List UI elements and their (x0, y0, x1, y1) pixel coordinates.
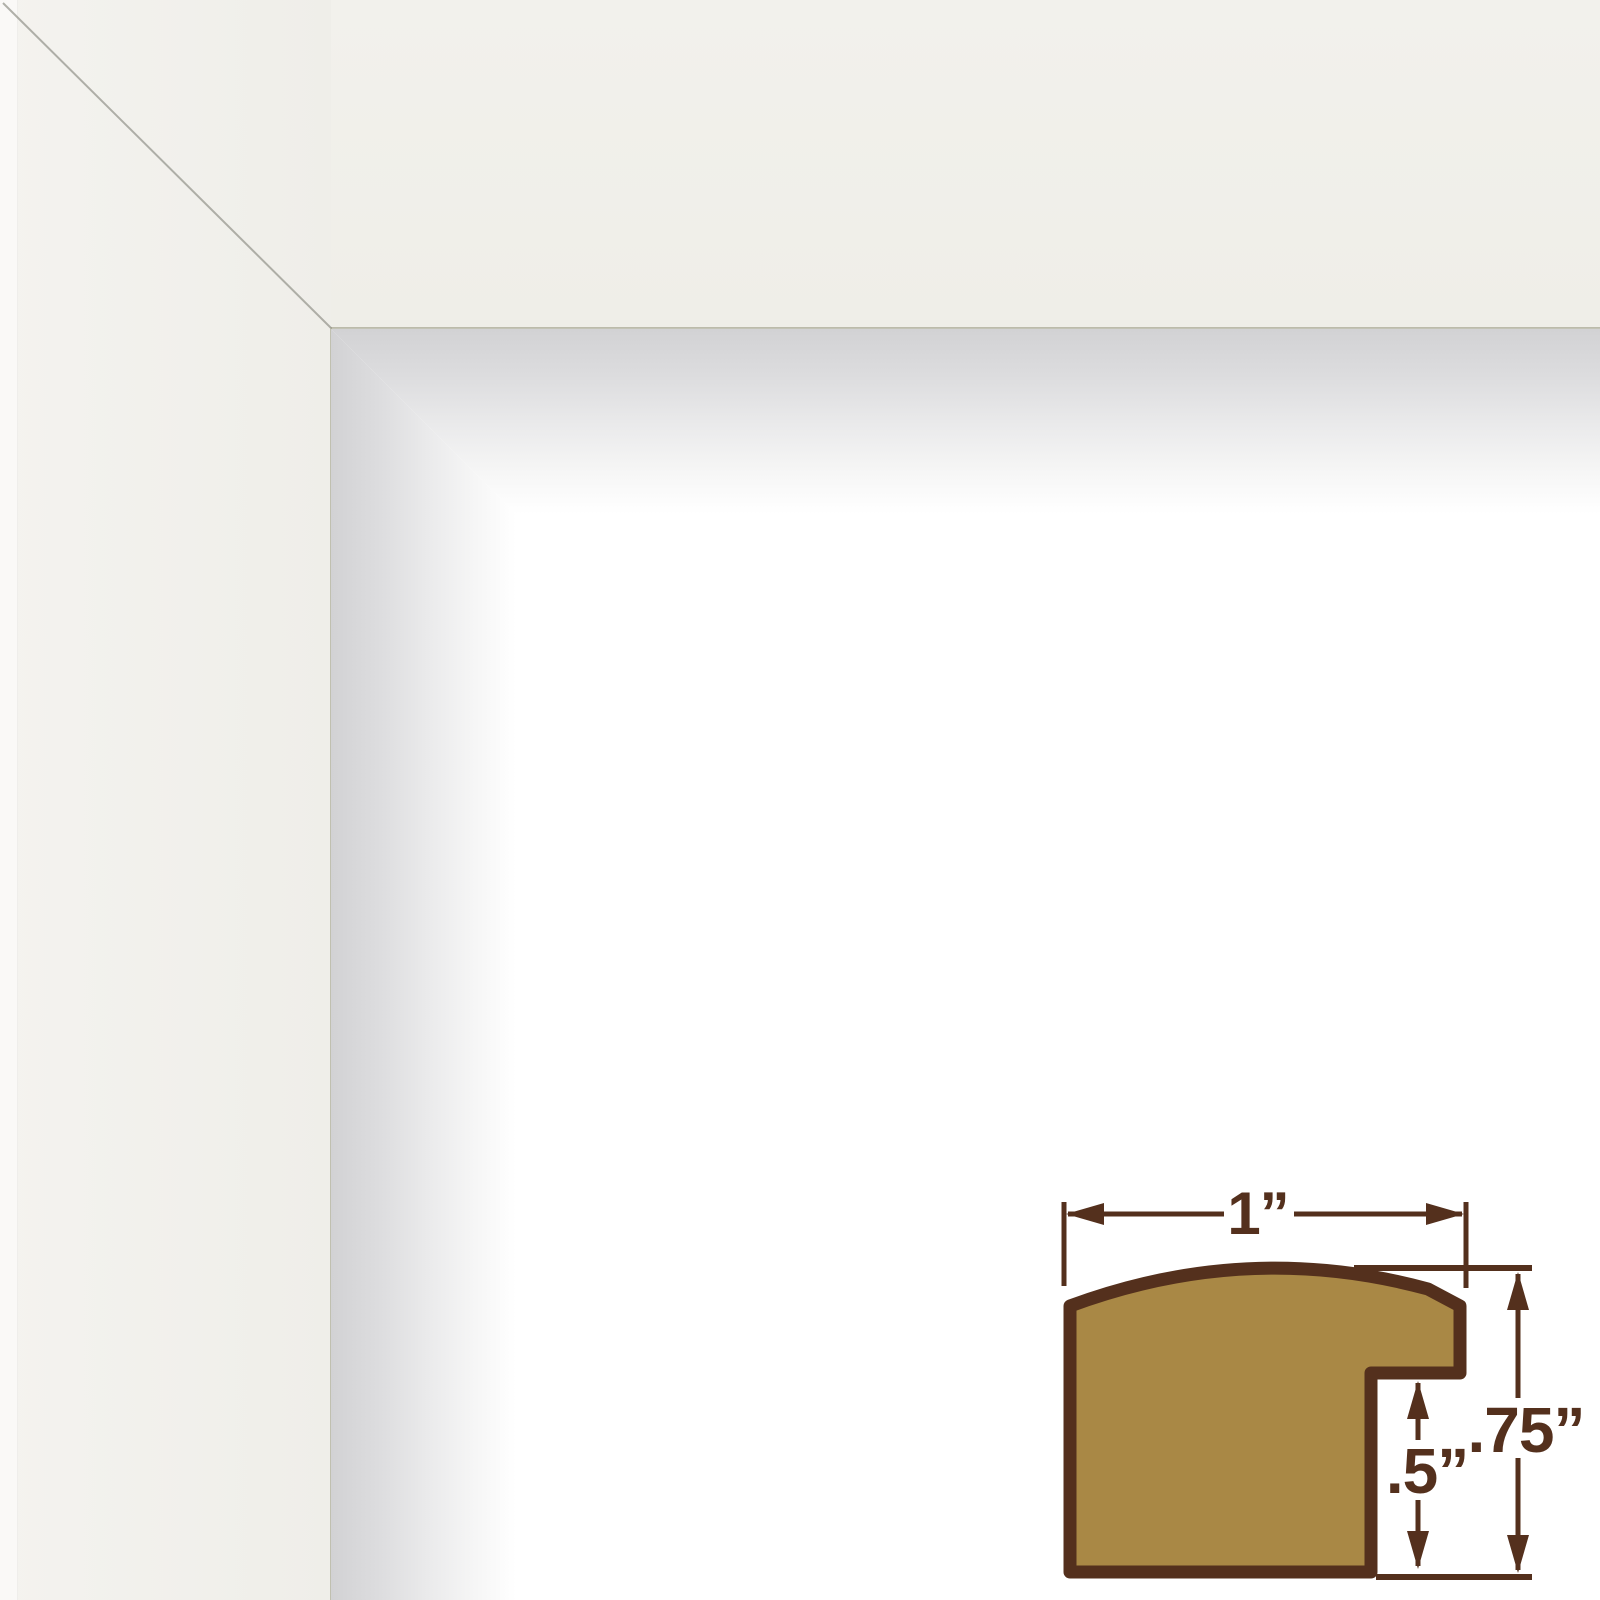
rabbet-depth-label: .5” (1386, 1435, 1468, 1507)
molding-cross-section (1070, 1268, 1460, 1572)
molding-profile-diagram: 1” .75” .5” (1000, 1150, 1600, 1600)
product-image: 1” .75” .5” (0, 0, 1600, 1600)
height-arrowhead-up (1507, 1272, 1529, 1310)
rabbet-arrowhead-up (1407, 1381, 1429, 1419)
height-label: .75” (1468, 1394, 1585, 1466)
frame-outer-edge-highlight (0, 0, 18, 1600)
frame-inner-shadow-top (331, 329, 1600, 514)
width-label: 1” (1227, 1180, 1288, 1247)
width-arrowhead-right (1426, 1203, 1464, 1225)
frame-inner-shadow-left (331, 329, 516, 1600)
frame-left-rail (0, 0, 331, 1600)
width-arrowhead-left (1066, 1203, 1104, 1225)
frame-inner-edge-line-top (331, 327, 1600, 329)
rabbet-arrowhead-down (1407, 1531, 1429, 1569)
height-arrowhead-down (1507, 1535, 1529, 1573)
